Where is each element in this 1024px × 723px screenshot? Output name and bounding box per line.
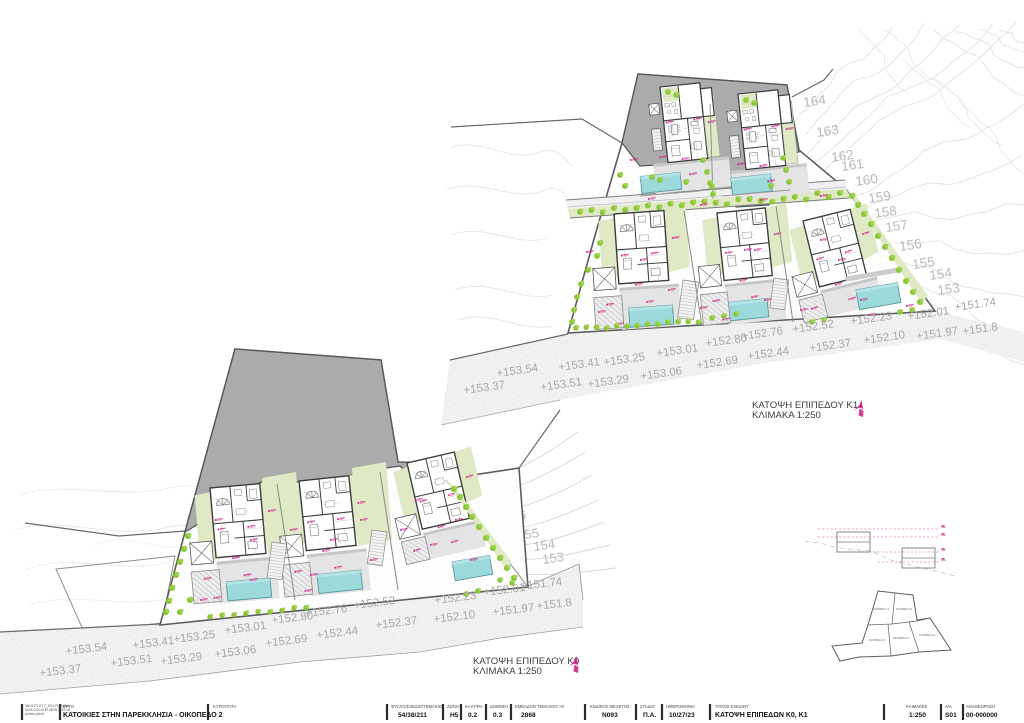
svg-text:156: 156	[898, 236, 922, 254]
svg-text:54/38/211: 54/38/211	[398, 712, 427, 719]
svg-text:ΕΜΒΑΔΟΝ ΤΕΜΑΧΙΟΥ m²: ΕΜΒΑΔΟΝ ΤΕΜΑΧΙΟΥ m²	[515, 704, 565, 709]
svg-text:Ν093: Ν093	[602, 712, 618, 719]
svg-text:161: 161	[840, 156, 864, 174]
svg-text:ΚΛΙΜΑΚΑ 1:250: ΚΛΙΜΑΚΑ 1:250	[473, 666, 542, 677]
svg-text:ΦΥΛΛΟ/ΣΧΕΔΙΟ/ΤΕΜΑΧΙΟ: ΦΥΛΛΟ/ΣΧΕΔΙΟ/ΤΕΜΑΧΙΟ	[391, 704, 443, 709]
svg-text:153: 153	[936, 280, 960, 298]
svg-text:ΤΙΤΛΟΣ ΣΧΕΔΙΟΥ: ΤΙΤΛΟΣ ΣΧΕΔΙΟΥ	[715, 704, 749, 709]
svg-text:0.2: 0.2	[468, 712, 477, 719]
svg-text:157: 157	[884, 217, 908, 235]
svg-text:Η5: Η5	[450, 712, 459, 719]
svg-text:164: 164	[802, 92, 827, 110]
svg-text:10/27/23: 10/27/23	[669, 712, 695, 719]
svg-text:ΚΑΤΟΨΗ ΕΠΙΠΕΔΩΝ Κ0, Κ1: ΚΑΤΟΨΗ ΕΠΙΠΕΔΩΝ Κ0, Κ1	[715, 712, 808, 719]
svg-text:0.3: 0.3	[493, 712, 502, 719]
svg-text:ΕΡΓΟ: ΕΡΓΟ	[63, 704, 75, 709]
svg-text:ΣΤΑΔΙΟ: ΣΤΑΔΙΟ	[640, 704, 656, 709]
svg-text:ΖΩΝΗ: ΖΩΝΗ	[447, 704, 459, 709]
svg-text:ΚΛΙΜΑΚΕΣ: ΚΛΙΜΑΚΕΣ	[906, 704, 928, 709]
svg-text:153: 153	[541, 549, 565, 567]
svg-text:ΚΑΤΟΙΚΙΑ 2.1: ΚΑΤΟΙΚΙΑ 2.1	[869, 638, 885, 642]
svg-text:ΚΑΤΟΙΚΙΑ 2.1: ΚΑΤΟΙΚΙΑ 2.1	[873, 607, 889, 611]
svg-text:ΚΑΤΟΙΚΙΑ 2.2: ΚΑΤΟΙΚΙΑ 2.2	[896, 607, 912, 611]
svg-text:ΚΥΡΙΟΤΗΤΑ: ΚΥΡΙΟΤΗΤΑ	[213, 704, 237, 709]
svg-text:Α/Α: Α/Α	[945, 704, 952, 709]
svg-text:printer pitch]: printer pitch]	[25, 712, 44, 716]
svg-text:ΑΝΑΘΕΩΡΗΣΗ: ΑΝΑΘΕΩΡΗΣΗ	[966, 704, 995, 709]
svg-text:ΚΛΙΜΑΚΑ 1:250: ΚΛΙΜΑΚΑ 1:250	[752, 410, 821, 421]
svg-text:ΔΟΜΗΣΗ: ΔΟΜΗΣΗ	[490, 704, 508, 709]
svg-text:2868: 2868	[521, 712, 536, 719]
svg-text:1:250: 1:250	[909, 712, 926, 719]
svg-text:ΚΩΔΙΚΟΣ ΜΕΛΕΤΗΣ: ΚΩΔΙΚΟΣ ΜΕΛΕΤΗΣ	[590, 704, 630, 709]
svg-text:ΚΑΤΟΙΚΙΑ 2.3: ΚΑΤΟΙΚΙΑ 2.3	[919, 633, 935, 637]
svg-text:00-000000: 00-000000	[966, 712, 998, 719]
svg-text:ΚΑΤΟΙΚΙΕΣ ΣΤΗΝ ΠΑΡΕΚΚΛΗΣΙΑ - Ο: ΚΑΤΟΙΚΙΕΣ ΣΤΗΝ ΠΑΡΕΚΚΛΗΣΙΑ - ΟΙΚΟΠΕΔΟ 2	[63, 712, 223, 719]
svg-text:ΚΑΛΥΨΗ: ΚΑΛΥΨΗ	[465, 704, 482, 709]
svg-text:ΚΑΤΟΙΚΙΑ 2.2: ΚΑΤΟΙΚΙΑ 2.2	[893, 636, 909, 640]
svg-text:ΗΜΕΡΟΜΗΝΙΑ: ΗΜΕΡΟΜΗΝΙΑ	[666, 704, 695, 709]
svg-text:S01: S01	[945, 712, 957, 719]
svg-text:Π.Α.: Π.Α.	[643, 712, 656, 719]
svg-text:160: 160	[854, 171, 878, 189]
svg-text:154: 154	[928, 265, 953, 283]
svg-text:163: 163	[815, 122, 839, 140]
